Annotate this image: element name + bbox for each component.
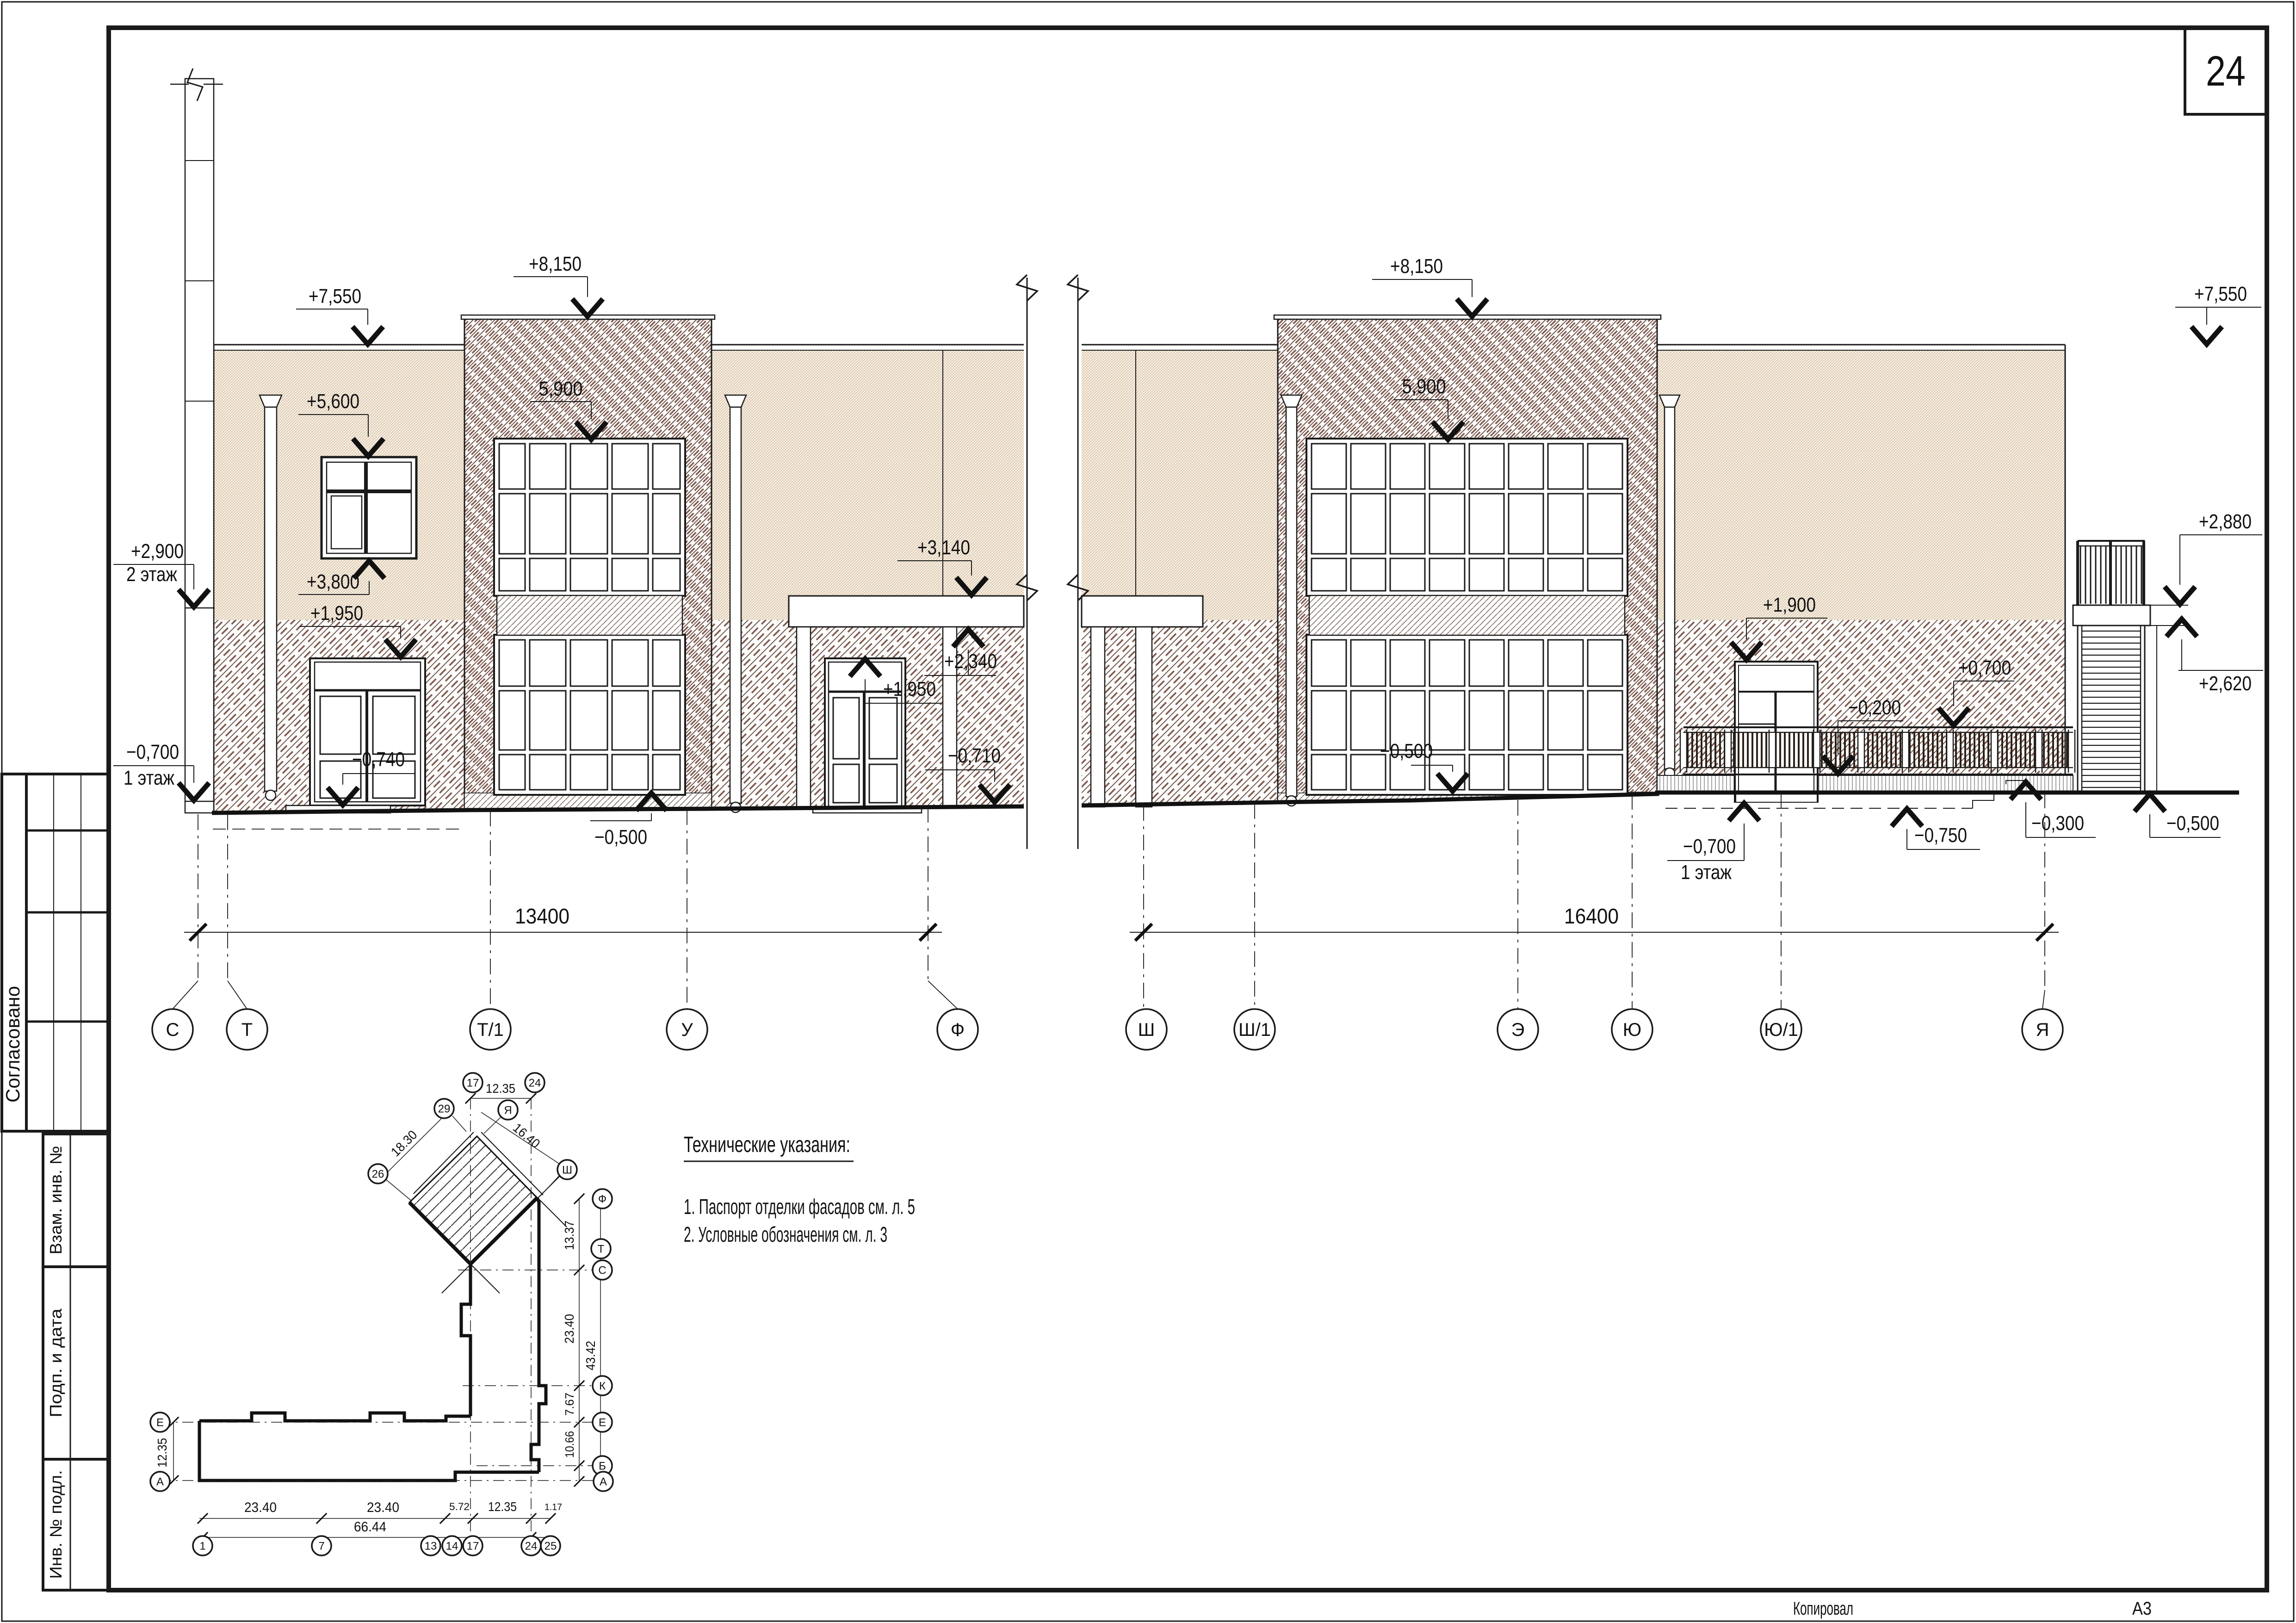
svg-text:5.72: 5.72 [449,1501,470,1512]
svg-text:+3,800: +3,800 [307,570,359,593]
svg-text:12.35: 12.35 [488,1499,517,1514]
svg-text:+1,900: +1,900 [1763,594,1816,616]
svg-text:Копировал: Копировал [1793,1598,1853,1619]
svg-text:+3,140: +3,140 [917,536,970,559]
svg-text:2 этаж: 2 этаж [126,563,177,586]
svg-text:17: 17 [467,1540,479,1552]
svg-text:Т: Т [598,1243,605,1255]
svg-text:Ф: Ф [598,1193,606,1205]
svg-text:Е: Е [156,1416,164,1429]
svg-text:Ю/1: Ю/1 [1764,1020,1798,1040]
svg-text:С: С [166,1020,179,1040]
svg-text:12.35: 12.35 [155,1438,169,1468]
svg-text:С: С [598,1264,606,1276]
svg-text:24: 24 [529,1077,541,1089]
svg-text:+1,950: +1,950 [310,602,363,625]
svg-text:1 этаж: 1 этаж [1681,861,1732,884]
svg-text:−0,500: −0,500 [594,826,647,849]
svg-text:29: 29 [438,1103,451,1115]
svg-text:+2,620: +2,620 [2199,672,2252,695]
svg-text:Ю: Ю [1623,1020,1641,1040]
svg-text:Т/1: Т/1 [477,1020,504,1040]
svg-text:А3: А3 [2132,1598,2152,1619]
svg-text:14: 14 [446,1540,458,1552]
svg-text:23.40: 23.40 [367,1500,399,1515]
svg-text:−0,500: −0,500 [1380,740,1433,762]
svg-text:7: 7 [318,1540,324,1552]
svg-text:Взам. инв. №: Взам. инв. № [46,1146,65,1255]
svg-text:24: 24 [525,1540,538,1552]
svg-text:24: 24 [2206,48,2246,95]
svg-text:7.67: 7.67 [563,1393,576,1416]
svg-text:13400: 13400 [515,904,569,928]
svg-text:К: К [599,1380,606,1392]
svg-text:12.35: 12.35 [486,1081,515,1096]
svg-text:1. Паспорт отделки фасадов см.: 1. Паспорт отделки фасадов см. л. 5 [684,1195,915,1219]
svg-text:13.37: 13.37 [562,1220,576,1250]
svg-text:+7,550: +7,550 [309,285,361,308]
svg-text:−0,740: −0,740 [352,748,405,771]
svg-text:−0,300: −0,300 [2031,812,2084,835]
svg-text:+8,150: +8,150 [529,253,582,275]
svg-text:23.40: 23.40 [244,1500,277,1515]
svg-text:−0,500: −0,500 [2166,812,2219,835]
svg-text:Ш/1: Ш/1 [1238,1020,1271,1040]
svg-text:13: 13 [425,1540,437,1552]
svg-text:−0,700: −0,700 [126,741,179,763]
svg-text:+7,550: +7,550 [2194,283,2247,305]
svg-text:+2,900: +2,900 [131,540,184,563]
svg-text:А: А [156,1475,164,1488]
svg-text:Я: Я [2036,1020,2049,1040]
svg-text:Я: Я [504,1104,512,1116]
svg-text:43.42: 43.42 [583,1341,598,1370]
svg-text:−0,200: −0,200 [1848,696,1901,719]
svg-text:1: 1 [199,1540,205,1552]
svg-text:−0,710: −0,710 [948,744,1001,767]
svg-text:У: У [681,1020,693,1040]
svg-text:25: 25 [545,1540,557,1552]
svg-text:−0,700: −0,700 [1683,835,1736,858]
svg-text:+2,880: +2,880 [2199,510,2252,533]
svg-text:Т: Т [241,1020,253,1040]
svg-text:А: А [600,1475,607,1488]
svg-text:17: 17 [467,1077,479,1089]
svg-text:2. Условные обозначения см. л.: 2. Условные обозначения см. л. 3 [684,1222,887,1246]
svg-text:Е: Е [599,1416,606,1429]
svg-text:23.40: 23.40 [562,1314,576,1344]
svg-text:+2,340: +2,340 [944,650,997,673]
svg-text:5,900: 5,900 [1402,375,1446,398]
svg-text:Ш: Ш [1138,1020,1155,1040]
svg-text:Ш: Ш [562,1164,572,1176]
svg-text:1.17: 1.17 [545,1502,562,1512]
svg-text:Согласовано: Согласовано [2,986,24,1103]
svg-text:+8,150: +8,150 [1390,255,1443,278]
svg-text:66.44: 66.44 [354,1519,386,1535]
svg-text:Подп. и дата: Подп. и дата [46,1308,65,1417]
svg-text:Ф: Ф [951,1020,965,1040]
svg-text:10.66: 10.66 [563,1431,576,1458]
svg-text:Инв. № подл.: Инв. № подл. [46,1470,65,1579]
svg-text:5,900: 5,900 [539,378,583,400]
svg-text:16400: 16400 [1564,904,1619,928]
svg-text:+1,950: +1,950 [883,678,936,700]
svg-text:−0,750: −0,750 [1914,824,1967,847]
svg-text:+5,600: +5,600 [307,390,359,413]
svg-text:Б: Б [599,1460,606,1472]
svg-text:26: 26 [372,1168,384,1180]
svg-text:+0,700: +0,700 [1958,657,2011,679]
svg-text:Э: Э [1511,1020,1525,1040]
svg-text:1 этаж: 1 этаж [124,767,174,789]
svg-text:Технические указания:: Технические указания: [684,1133,850,1157]
